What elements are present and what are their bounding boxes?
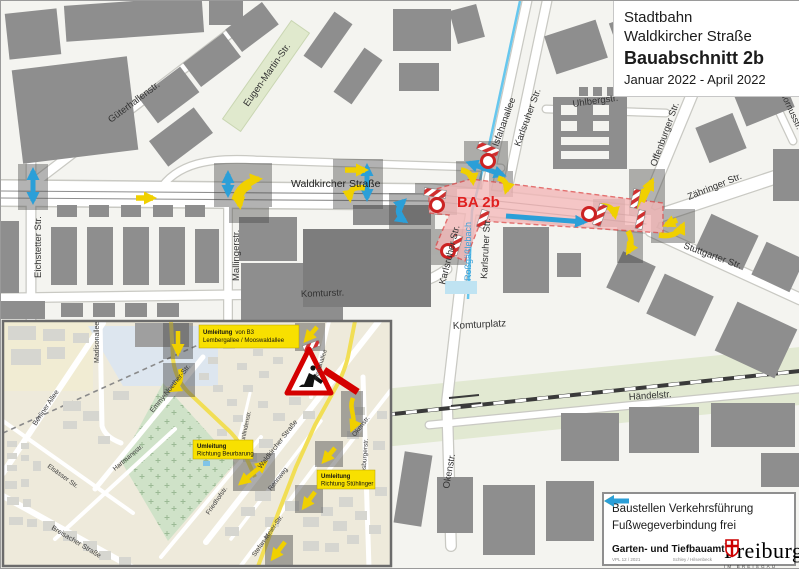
detour-label-beurbarung: Umleitung Richtung Beurbarung — [193, 440, 254, 459]
detour-bold: Umleitung — [197, 444, 227, 450]
legend-detour-label: Baustellen Verkehrsführung — [612, 503, 753, 515]
title-line1: Stadtbahn — [624, 8, 799, 27]
plan-authors: Schley / Hilsenbeck — [673, 557, 712, 562]
detour-bold: Umleitung — [321, 474, 351, 480]
inset-map: Madisonallee Berliner Allee Emmy-Noether… — [3, 321, 391, 568]
detour-line2: Richtung Stühlinger — [321, 482, 373, 488]
svg-text:Umleitungvon B3: Umleitungvon B3 — [203, 330, 255, 336]
legend-footpath-label: Fußwegeverbindung frei — [612, 520, 736, 532]
detour-label-stuehlinger: Umleitung Richtung Stühlinger — [317, 470, 375, 489]
street-label: Madisonallee — [94, 322, 101, 363]
city-logo: Freiburg IM BREISGAU — [724, 538, 799, 569]
detour-line2: Richtung Beurbarung — [197, 452, 254, 458]
legend-box: Baustellen Verkehrsführung Fußwegeverbin… — [602, 492, 796, 566]
freiburg-crest-icon — [724, 538, 740, 558]
title-line2: Waldkircher Straße — [624, 27, 799, 46]
title-line4: Januar 2022 - April 2022 — [624, 70, 799, 90]
title-line3: Bauabschnitt 2b — [624, 46, 799, 70]
detour-rest: von B3 — [235, 330, 254, 336]
street-label: Komturstr. — [301, 287, 345, 300]
legend-footer: Garten- und Tiefbauamt VPL 12 / 2021 Sch… — [612, 538, 788, 569]
pond — [445, 281, 477, 294]
department-name: Garten- und Tiefbauamt — [612, 544, 716, 555]
blue-arrow-icon — [604, 494, 630, 508]
zone-label: BA 2b — [457, 194, 500, 211]
stream-label: Roßgäßlebach — [463, 222, 473, 281]
street-label: Waldkircher Straße — [291, 178, 381, 190]
construction-plan-screenshot: BA 2b — [0, 0, 799, 569]
street-label: Mallingerstr. — [231, 230, 242, 281]
title-block: Stadtbahn Waldkircher Straße Bauabschnit… — [613, 1, 799, 97]
plan-ref: VPL 12 / 2021 — [612, 557, 640, 562]
detour-line2: Lembergallee / Mooswaldallee — [203, 338, 285, 344]
street-label: Eichstetter Str. — [33, 216, 44, 278]
detour-bold: Umleitung — [203, 330, 233, 336]
detour-label-b3: Umleitungvon B3 Lembergallee / Mooswalda… — [199, 325, 299, 348]
legend-item-detour: Baustellen Verkehrsführung — [612, 500, 788, 517]
legend-item-footpath: Fußwegeverbindung frei — [612, 517, 788, 534]
